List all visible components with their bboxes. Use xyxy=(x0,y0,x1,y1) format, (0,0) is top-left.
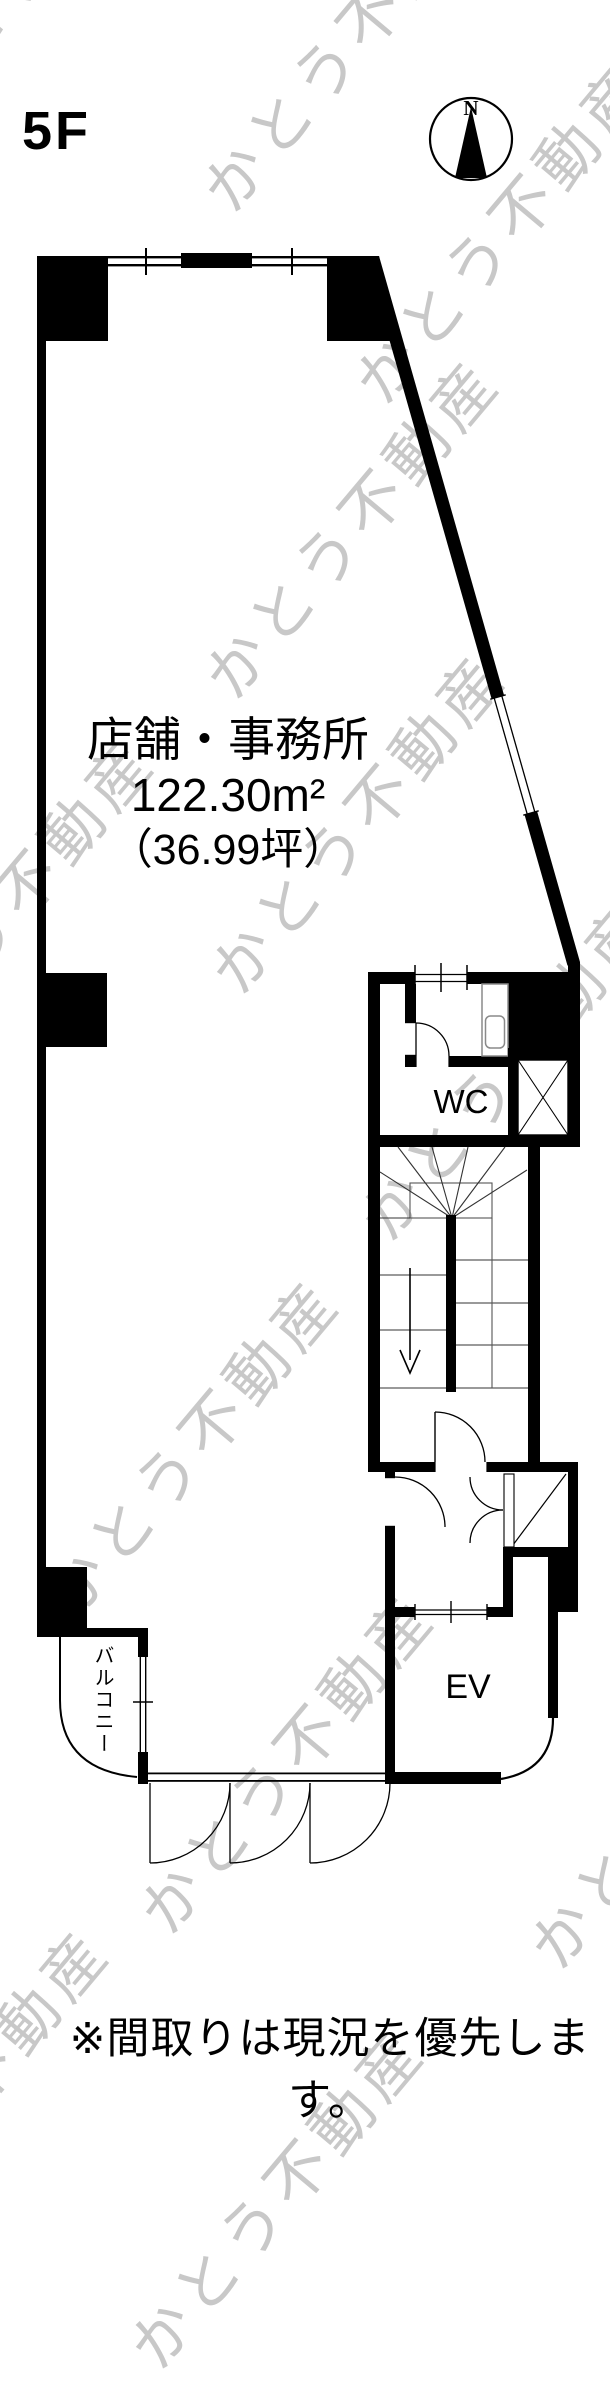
balcony-label: バルコニー xyxy=(88,1645,117,1755)
elevator-door xyxy=(415,1601,487,1623)
main-room-name: 店舗・事務所 xyxy=(78,712,378,768)
main-room-label: 店舗・事務所 122.30m² （36.99坪） xyxy=(78,712,378,878)
down-arrow xyxy=(400,1268,420,1373)
main-room-area-tsubo: （36.99坪） xyxy=(78,823,378,878)
window-wc xyxy=(415,963,467,992)
floor-plan-page: かとう不動産 かとう不動産 かとう不動産 かとう不動産 かとう不動産 かとう不動… xyxy=(0,0,610,2126)
door-anteroom xyxy=(405,1022,449,1056)
hall-block xyxy=(385,1462,578,1784)
window-top xyxy=(108,248,327,275)
main-room-area-sqm: 122.30m² xyxy=(78,768,378,823)
floor-label: 5F xyxy=(22,100,91,162)
door-stairs xyxy=(435,1412,487,1472)
door-wc xyxy=(416,1056,449,1067)
storefront-entrance xyxy=(148,1773,390,1864)
disclaimer-note: ※間取りは現況を優先します。 xyxy=(50,2004,610,2128)
floor-plan-drawing xyxy=(0,0,610,2126)
window-balcony xyxy=(133,1657,153,1752)
stairs xyxy=(368,1147,578,1472)
exterior-walls xyxy=(37,248,580,1637)
entrance-door xyxy=(150,1783,390,1863)
shaft-duct xyxy=(518,1060,568,1135)
sink-unit xyxy=(482,984,508,1056)
pipe-space xyxy=(470,1462,578,1557)
elevator-label: EV xyxy=(432,1668,504,1707)
window-diagonal xyxy=(490,695,538,815)
door-hall-shop xyxy=(385,1477,445,1527)
wc-room-label: WC xyxy=(425,1083,497,1121)
compass-north-label: N xyxy=(448,96,494,121)
